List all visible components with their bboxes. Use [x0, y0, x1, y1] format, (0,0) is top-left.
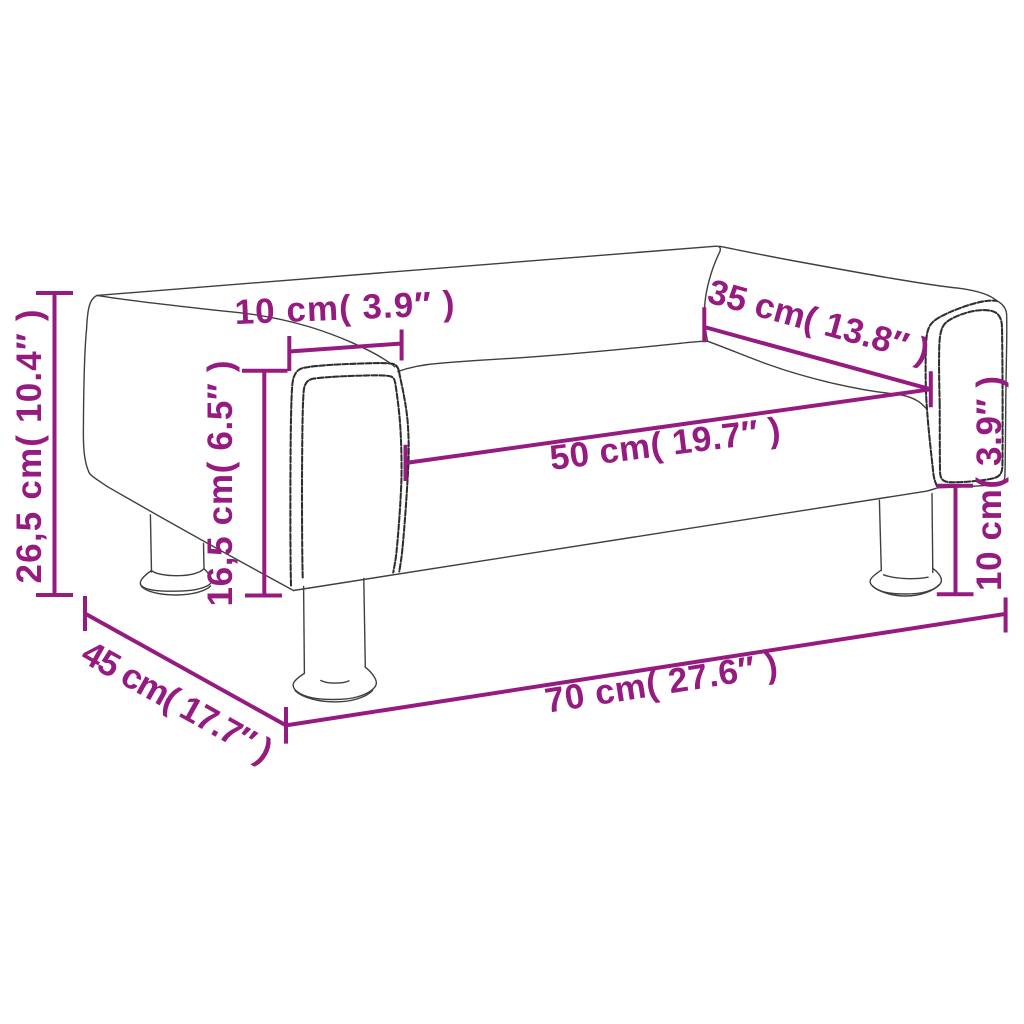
svg-text:10 cm( 3.9″ ): 10 cm( 3.9″ ) [970, 376, 1009, 591]
svg-text:26,5 cm( 10.4″ ): 26,5 cm( 10.4″ ) [10, 310, 49, 584]
svg-text:16,5 cm( 6.5″ ): 16,5 cm( 6.5″ ) [201, 361, 240, 607]
